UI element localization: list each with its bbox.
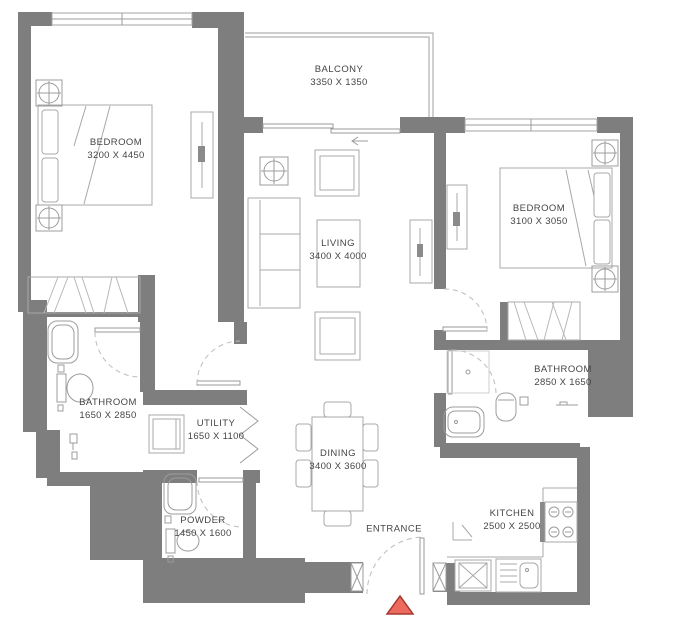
floor-plan-drawing	[0, 0, 686, 633]
room-dims: 3400 X 4000	[309, 251, 366, 264]
window-bedroom-1	[52, 13, 192, 25]
entrance-text: ENTRANCE	[366, 524, 422, 537]
sofa-icon	[248, 198, 300, 308]
room-dims: 3350 X 1350	[310, 77, 367, 90]
room-label-powder: POWDER 1450 X 1600	[174, 515, 231, 541]
ceiling-light-icon	[36, 205, 62, 231]
room-label-balcony: BALCONY 3350 X 1350	[310, 64, 367, 90]
room-name: BATHROOM	[534, 364, 592, 377]
room-name: POWDER	[174, 515, 231, 528]
room-label-living: LIVING 3400 X 4000	[309, 238, 366, 264]
room-dims: 2850 X 1650	[534, 377, 592, 390]
room-label-bathroom-1: BATHROOM 1650 X 2850	[79, 397, 137, 423]
ceiling-light-icon	[592, 266, 618, 292]
room-name: BEDROOM	[510, 203, 567, 216]
tv-unit-icon	[410, 220, 432, 283]
room-label-utility: UTILITY 1650 X 1100	[188, 418, 244, 444]
room-dims: 1650 X 2850	[79, 410, 137, 423]
room-name: BATHROOM	[79, 397, 137, 410]
sink-icon	[48, 321, 78, 372]
room-name: DINING	[309, 448, 366, 461]
entrance-label: ENTRANCE	[366, 524, 422, 537]
room-name: LIVING	[309, 238, 366, 251]
door-corridor	[197, 341, 240, 385]
room-label-bathroom-2: BATHROOM 2850 X 1650	[534, 364, 592, 390]
room-name: BEDROOM	[87, 137, 144, 150]
ceiling-light-icon	[592, 140, 618, 166]
entrance-marker-icon	[387, 596, 413, 614]
washing-machine-icon	[149, 415, 184, 453]
door-entrance	[367, 537, 424, 594]
armchair-icon	[315, 312, 360, 360]
room-label-kitchen: KITCHEN 2500 X 2500	[483, 508, 540, 534]
room-dims: 3100 X 3050	[510, 216, 567, 229]
wardrobe-icon	[508, 302, 580, 340]
armchair-icon	[315, 150, 359, 196]
room-name: KITCHEN	[483, 508, 540, 521]
dishwasher-icon	[455, 560, 491, 591]
room-dims: 2500 X 2500	[483, 521, 540, 534]
ceiling-light-icon	[260, 157, 288, 185]
room-name: BALCONY	[310, 64, 367, 77]
towel-rail-icon	[556, 402, 578, 405]
shower-icon	[447, 351, 489, 393]
room-name: UTILITY	[188, 418, 244, 431]
window-bedroom-2	[465, 119, 597, 131]
door-jamb-icon	[351, 563, 446, 591]
stove-icon	[540, 502, 577, 542]
room-dims: 1450 X 1600	[174, 528, 231, 541]
shower-drain-icon	[70, 434, 77, 459]
tv-unit-icon	[191, 112, 213, 198]
toilet-icon	[496, 393, 528, 421]
door-bathroom-1	[95, 328, 140, 377]
room-label-bedroom-1: BEDROOM 3200 X 4450	[87, 137, 144, 163]
tv-unit-icon	[447, 185, 467, 249]
sliding-door-icon	[263, 124, 400, 145]
room-dims: 3400 X 3600	[309, 461, 366, 474]
room-dims: 1650 X 1100	[188, 431, 244, 444]
room-label-dining: DINING 3400 X 3600	[309, 448, 366, 474]
room-dims: 3200 X 4450	[87, 150, 144, 163]
floor-plan: BEDROOM 3200 X 4450 BALCONY 3350 X 1350 …	[0, 0, 686, 633]
room-label-bedroom-2: BEDROOM 3100 X 3050	[510, 203, 567, 229]
kitchen-sink-icon	[496, 559, 541, 592]
ceiling-light-icon	[36, 80, 62, 106]
door-bedroom-2	[443, 289, 487, 331]
sink-icon	[444, 407, 484, 437]
